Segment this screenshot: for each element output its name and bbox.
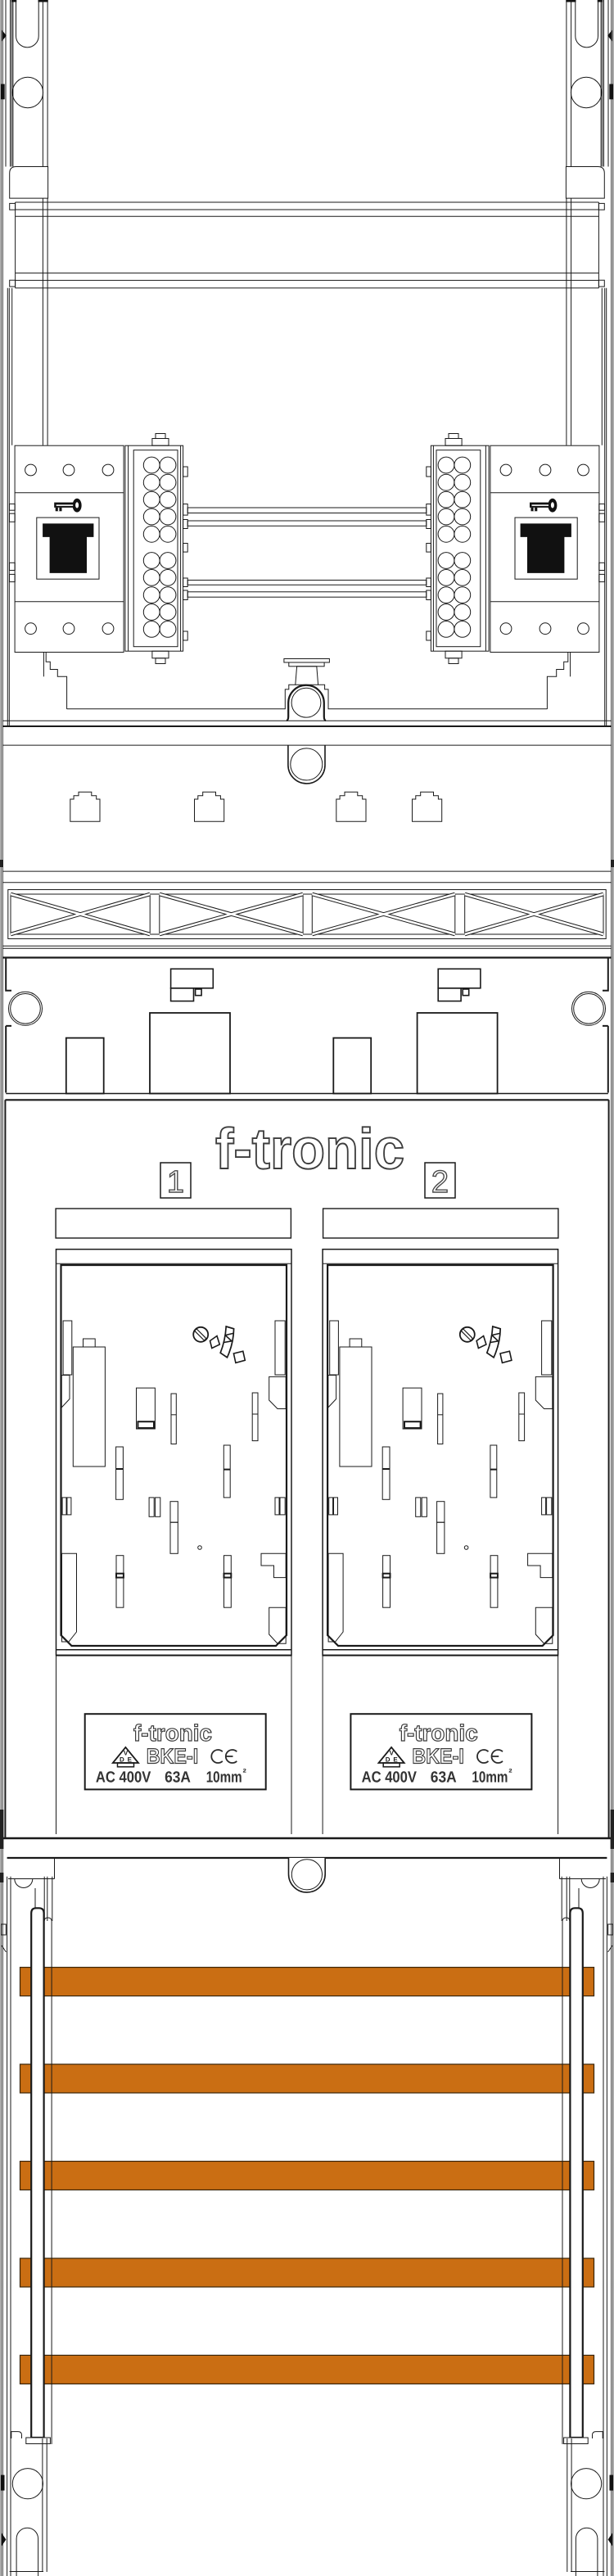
- svg-text:63A: 63A: [165, 1769, 191, 1787]
- svg-text:10mm: 10mm: [206, 1769, 242, 1787]
- svg-text:D: D: [120, 1756, 124, 1764]
- svg-text:f-tronic: f-tronic: [215, 1117, 404, 1181]
- svg-text:1: 1: [167, 1165, 184, 1200]
- svg-text:2: 2: [431, 1165, 449, 1200]
- svg-text:f-tronic: f-tronic: [133, 1720, 212, 1746]
- svg-text:BKE-I: BKE-I: [147, 1744, 199, 1769]
- svg-text:E: E: [128, 1756, 133, 1764]
- svg-text:²: ²: [243, 1766, 247, 1778]
- svg-text:AC 400V: AC 400V: [96, 1769, 151, 1787]
